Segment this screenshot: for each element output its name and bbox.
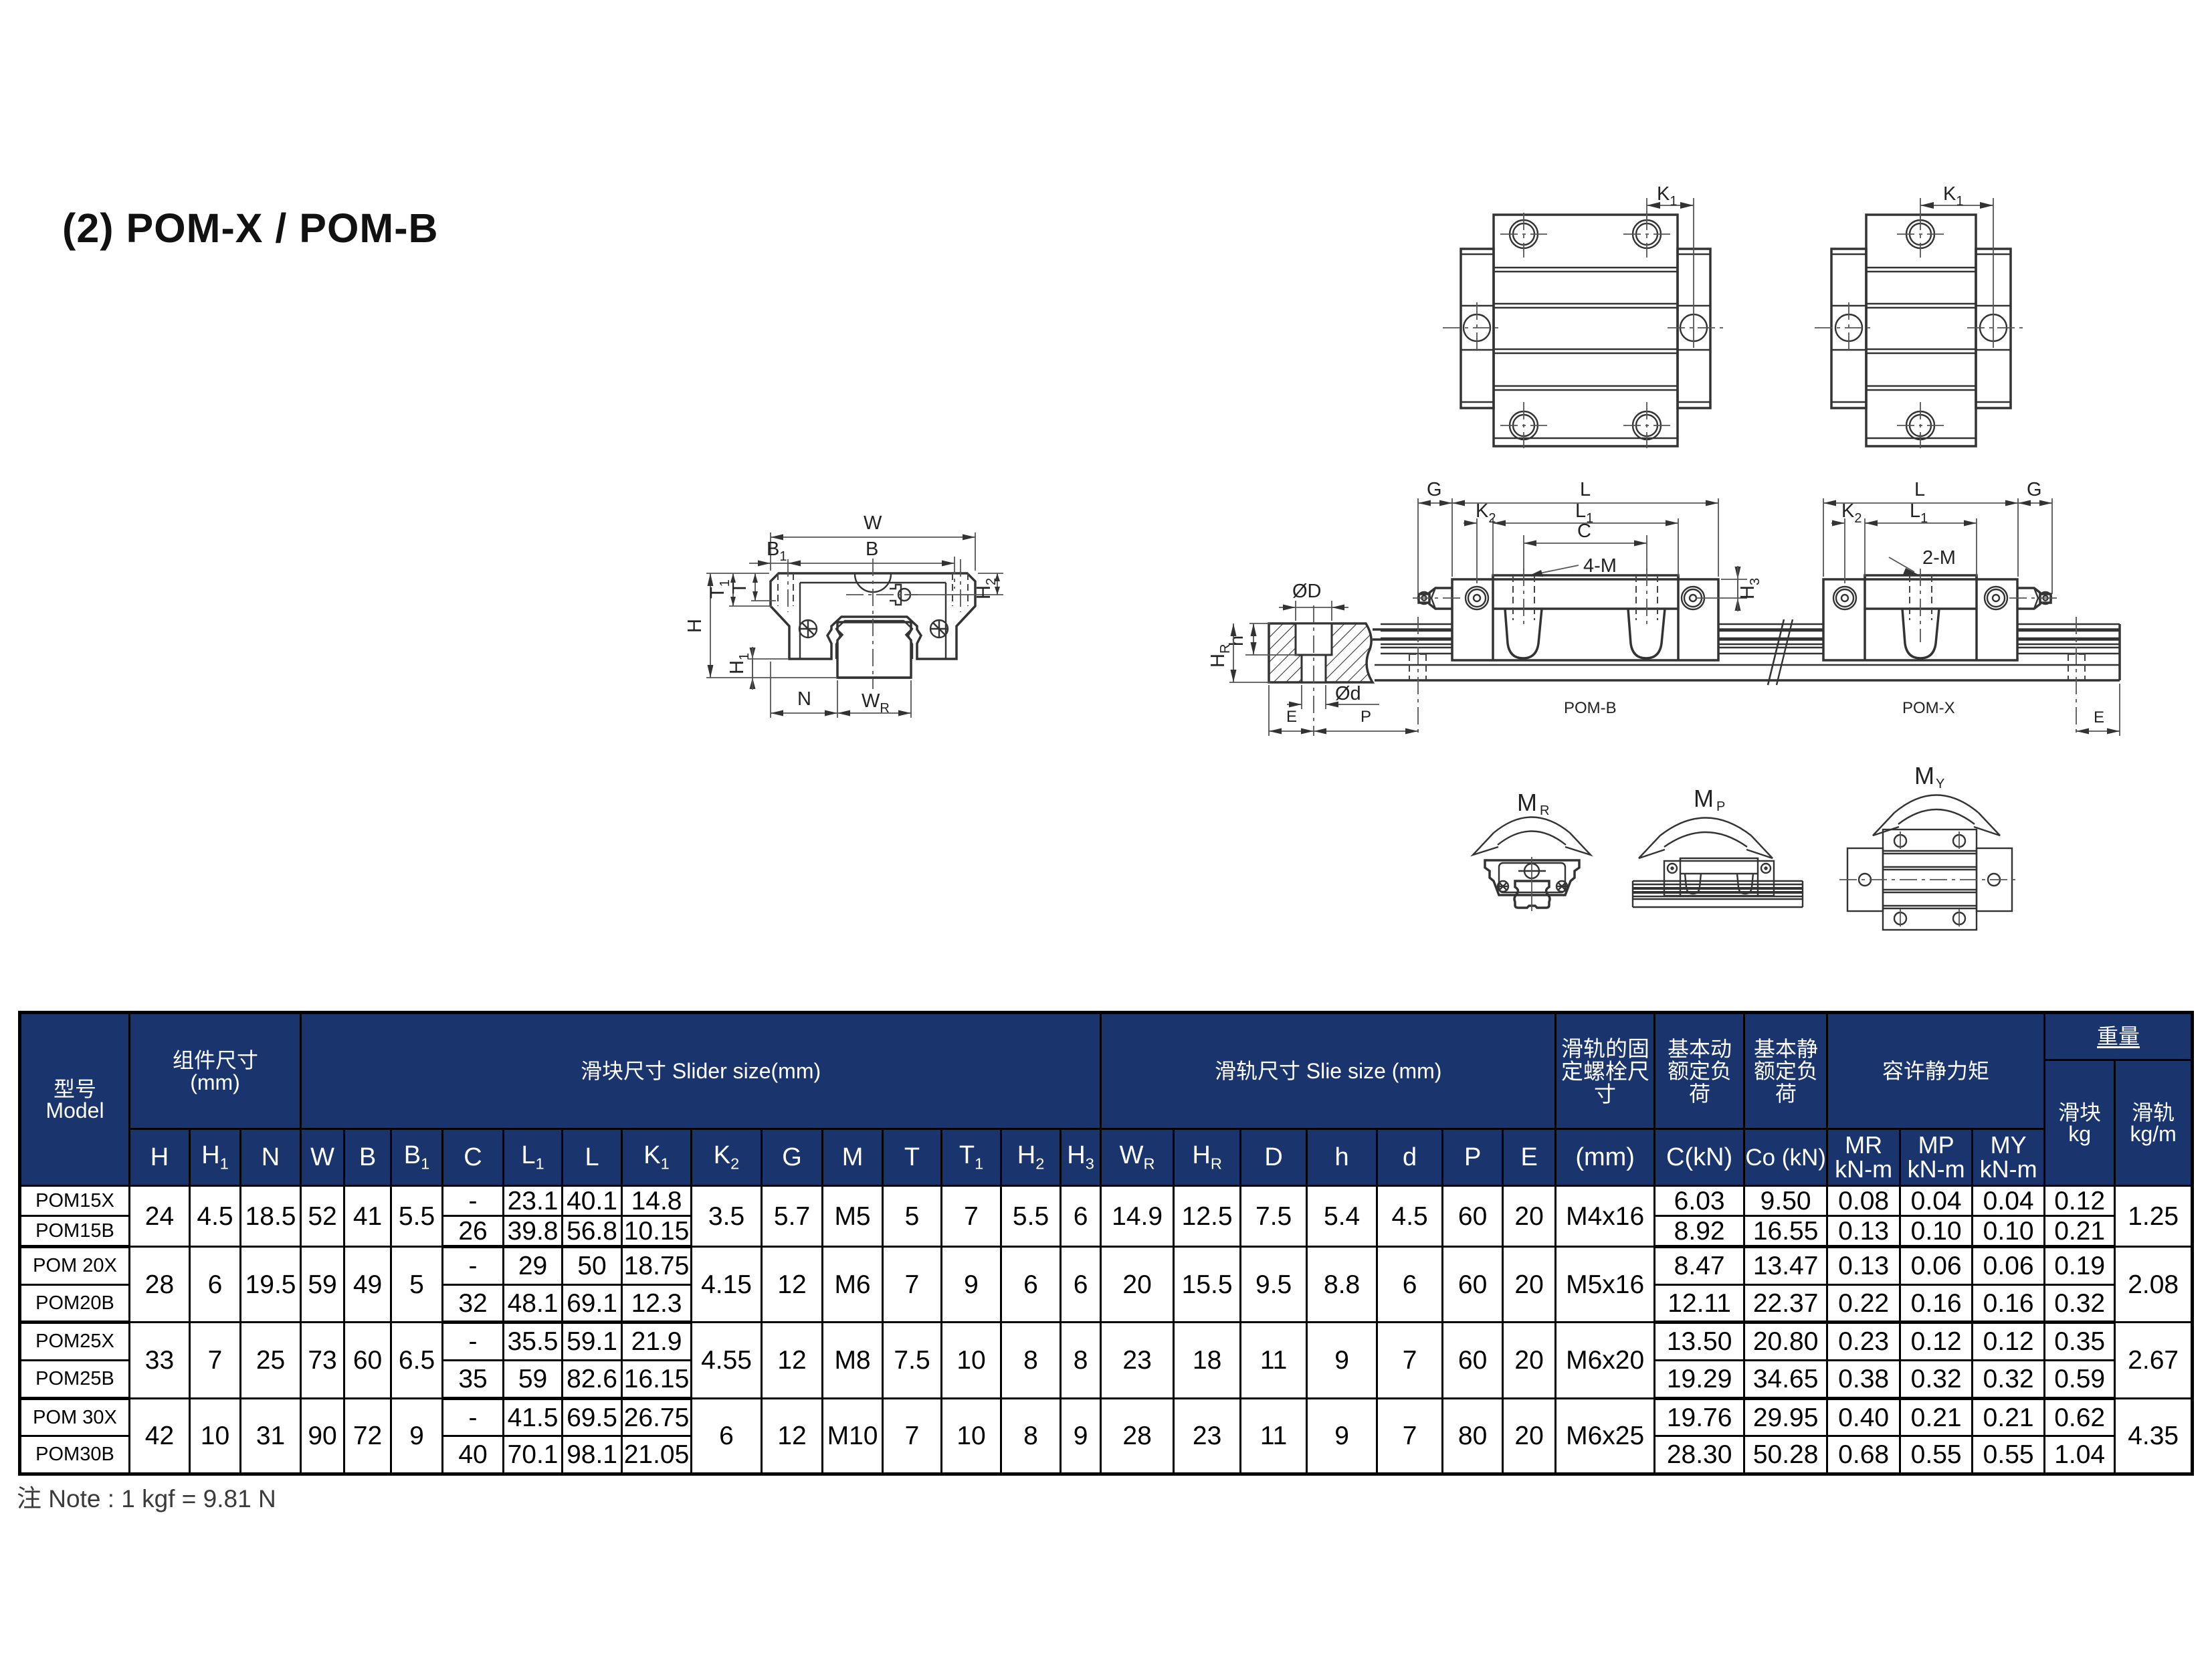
svg-text:W: W: [864, 512, 882, 534]
svg-text:ØD: ØD: [1292, 581, 1322, 602]
svg-text:L: L: [1914, 479, 1925, 500]
svg-text:N: N: [797, 688, 811, 710]
svg-text:MR: MR: [1517, 789, 1549, 818]
svg-text:L: L: [1580, 479, 1591, 500]
svg-text:G: G: [2027, 479, 2042, 500]
svg-text:E: E: [2094, 708, 2104, 726]
svg-text:H: H: [684, 619, 706, 633]
svg-text:H3: H3: [1737, 578, 1763, 599]
svg-text:4-M: 4-M: [1583, 555, 1617, 577]
svg-text:MP: MP: [1694, 785, 1725, 814]
svg-text:B1: B1: [767, 539, 787, 564]
svg-text:Ød: Ød: [1335, 683, 1361, 704]
svg-text:B: B: [866, 539, 878, 560]
svg-text:C: C: [1577, 520, 1591, 542]
svg-text:HR: HR: [1207, 644, 1233, 668]
svg-text:H2: H2: [973, 578, 999, 599]
svg-text:MY: MY: [1914, 762, 1944, 791]
svg-text:T: T: [729, 582, 750, 594]
svg-text:POM-B: POM-B: [1564, 699, 1617, 717]
svg-text:POM-X: POM-X: [1902, 699, 1955, 717]
svg-text:2-M: 2-M: [1922, 547, 1956, 569]
svg-text:G: G: [1427, 479, 1442, 500]
svg-text:P: P: [1361, 708, 1371, 726]
svg-text:E: E: [1286, 708, 1297, 726]
svg-text:K2: K2: [1476, 500, 1496, 526]
svg-text:WR: WR: [862, 690, 890, 716]
svg-text:L1: L1: [1910, 500, 1928, 526]
svg-text:H1: H1: [726, 653, 752, 674]
